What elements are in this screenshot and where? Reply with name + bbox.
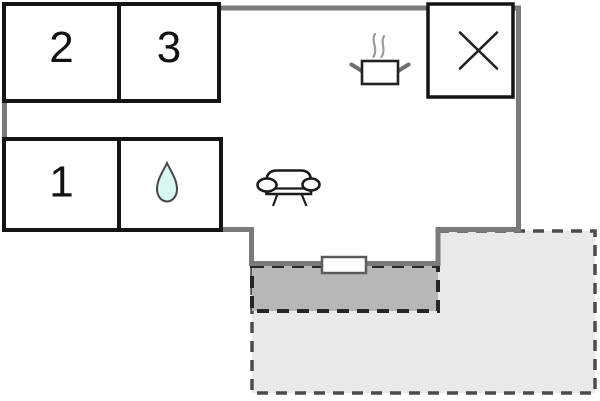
crossed-box bbox=[428, 4, 513, 97]
room-1-label: 1 bbox=[49, 158, 73, 207]
sofa-right-armrest bbox=[303, 179, 320, 191]
room-2-label: 2 bbox=[49, 23, 73, 72]
room-3-label: 3 bbox=[157, 23, 181, 72]
window-door-marker bbox=[322, 257, 366, 273]
floor-plan-drawing: 2 3 1 bbox=[0, 0, 600, 401]
pot-body bbox=[362, 61, 398, 84]
sofa-left-armrest bbox=[258, 179, 277, 192]
crossed-box-outline bbox=[428, 4, 513, 97]
floor-plan: 2 3 1 bbox=[0, 0, 600, 401]
